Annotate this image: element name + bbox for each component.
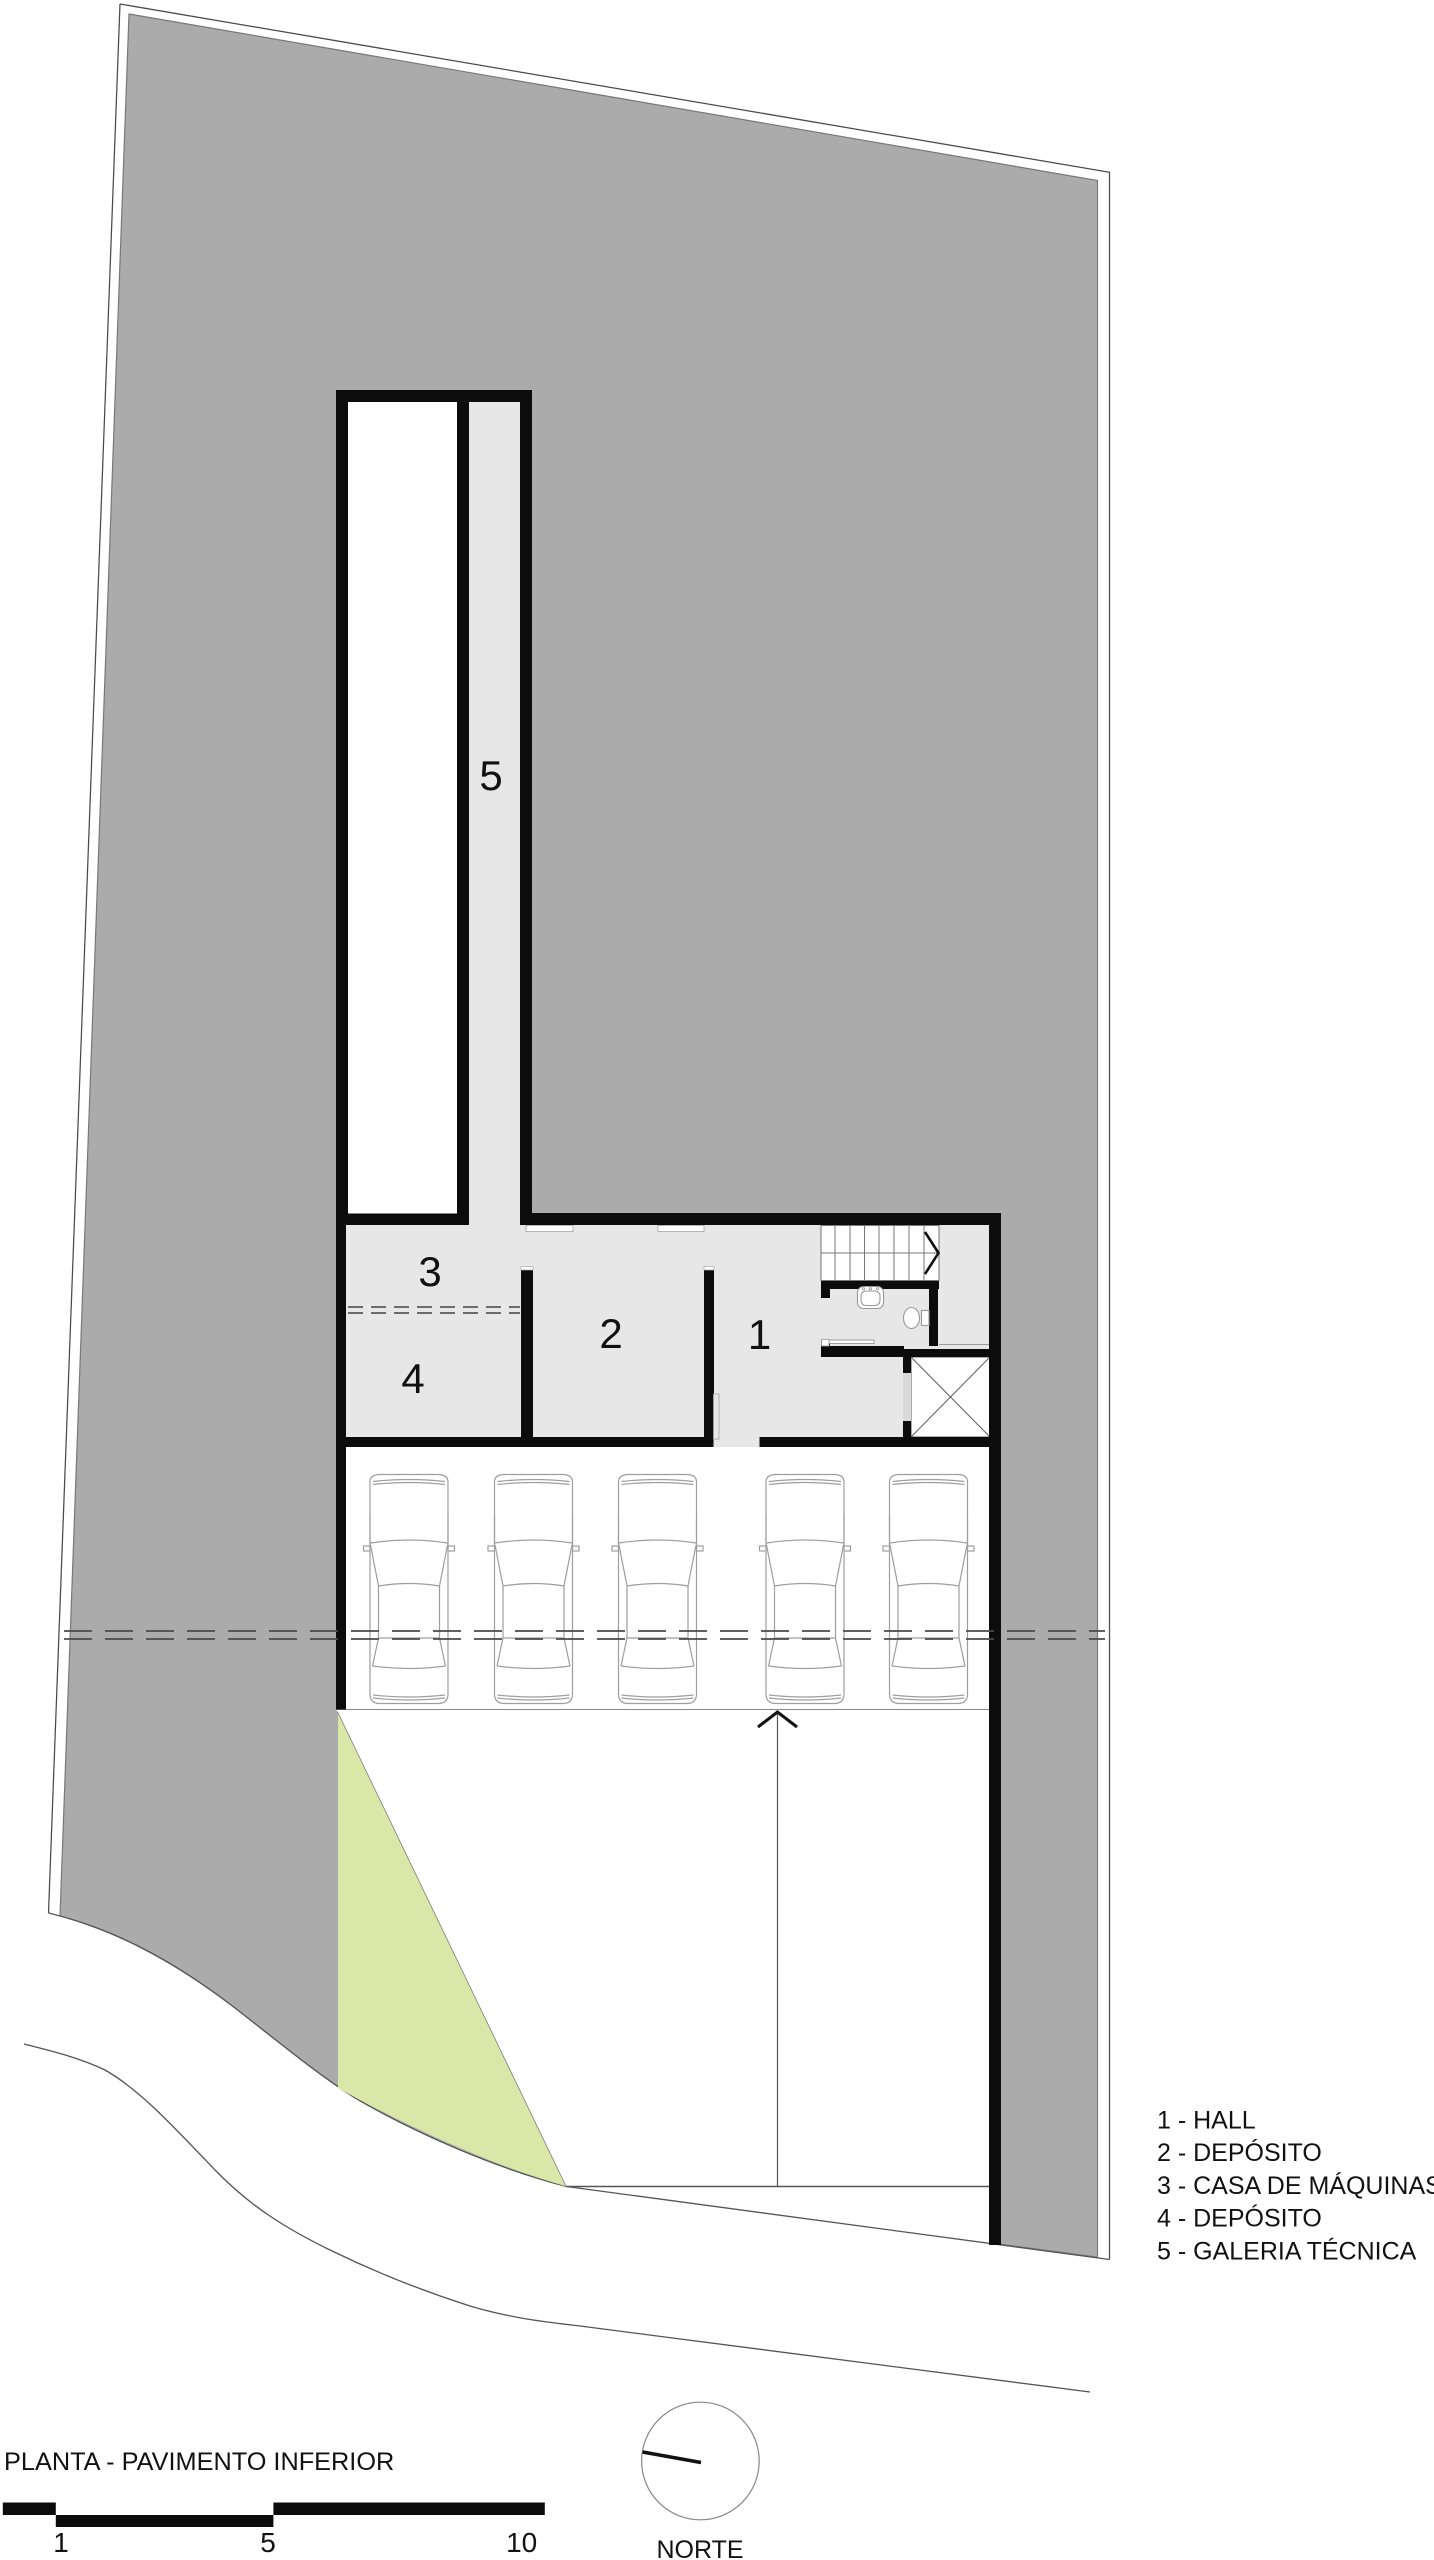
svg-text:3 - CASA DE MÁQUINAS: 3 - CASA DE MÁQUINAS [1157,2171,1434,2200]
svg-text:2: 2 [599,1310,622,1357]
svg-text:5: 5 [260,2527,276,2558]
svg-text:4 - DEPÓSITO: 4 - DEPÓSITO [1157,2204,1322,2233]
svg-text:PLANTA - PAVIMENTO INFERIOR: PLANTA - PAVIMENTO INFERIOR [4,2448,394,2476]
svg-text:3: 3 [418,1248,441,1295]
svg-text:1: 1 [53,2527,69,2558]
svg-text:4: 4 [401,1355,424,1402]
svg-text:10: 10 [506,2527,537,2558]
svg-text:2 - DEPÓSITO: 2 - DEPÓSITO [1157,2138,1322,2167]
svg-text:1: 1 [748,1311,771,1358]
svg-text:1 - HALL: 1 - HALL [1157,2107,1256,2135]
svg-text:NORTE: NORTE [656,2536,743,2560]
svg-text:5 - GALERIA TÉCNICA: 5 - GALERIA TÉCNICA [1157,2237,1417,2266]
svg-text:5: 5 [479,752,502,799]
